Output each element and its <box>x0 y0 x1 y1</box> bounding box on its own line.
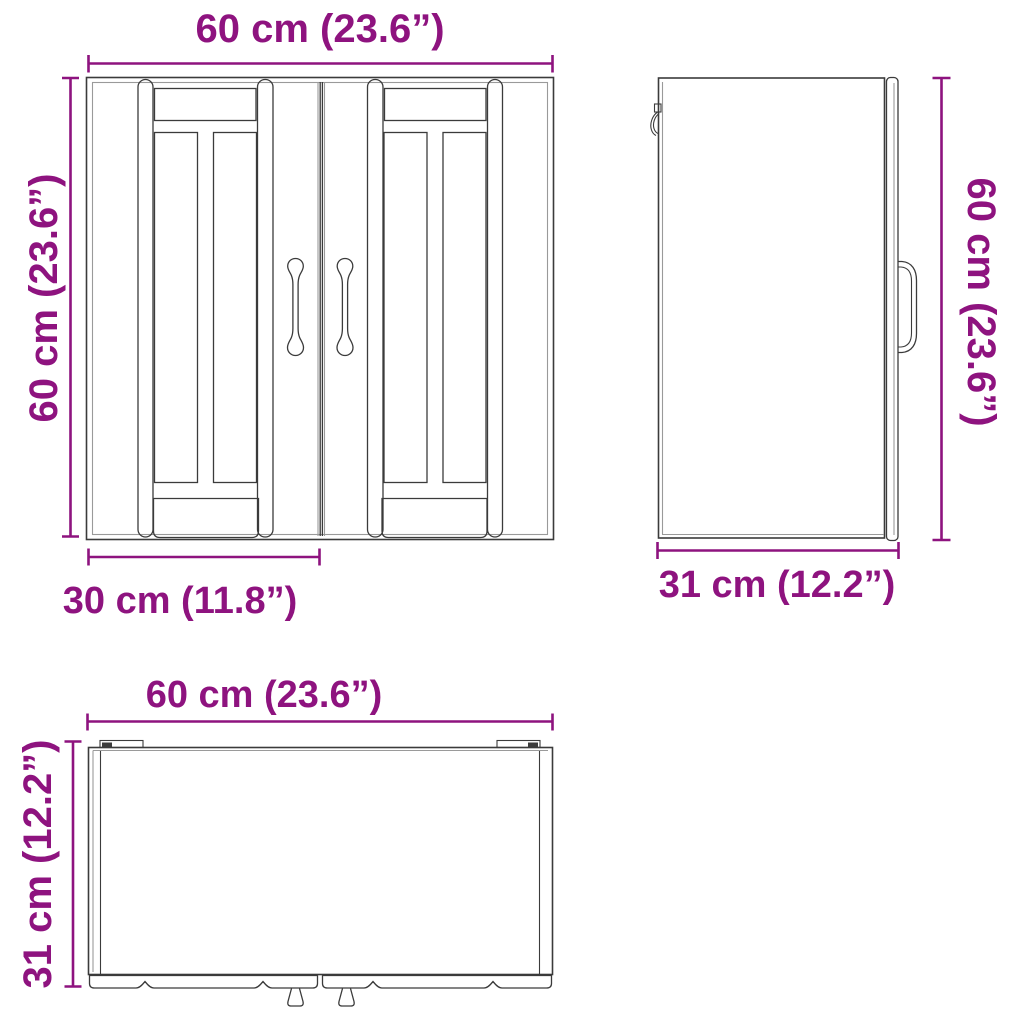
top-depth-dimension-line <box>65 742 82 987</box>
door-bottom-panel <box>154 499 259 538</box>
side-height-dimension-line <box>933 78 951 540</box>
door-handle-stile <box>258 80 274 538</box>
side-view-drawing <box>651 78 951 560</box>
door-handle <box>288 259 304 356</box>
door-hinge-stile <box>138 80 153 538</box>
top-right-door-front <box>323 976 552 989</box>
door-left-pane <box>155 133 198 483</box>
top-width-dimension-line <box>87 714 553 731</box>
diagram-canvas <box>0 0 1024 1024</box>
top-left-door-front <box>90 976 318 989</box>
front-door-width-dimension-line <box>88 549 320 566</box>
side-height-label: 60 cm (23.6”) <box>960 152 1002 452</box>
top-view-drawing <box>65 714 554 1007</box>
cabinet-dimension-diagram: 60 cm (23.6”) 60 cm (23.6”) 30 cm (11.8”… <box>0 0 1024 1024</box>
top-depth-label: 31 cm (12.2”) <box>17 714 59 1014</box>
top-carcass-outline <box>89 748 553 975</box>
front-width-dimension-line <box>88 55 553 73</box>
side-carcass-outline <box>659 78 885 538</box>
front-door-width-label: 30 cm (11.8”) <box>30 580 330 622</box>
door-right-pane <box>214 133 257 483</box>
front-height-label: 60 cm (23.6”) <box>23 148 65 448</box>
top-left-door-handle <box>288 989 303 1007</box>
front-left-door <box>138 80 304 538</box>
side-depth-dimension-line <box>657 542 899 559</box>
front-view-drawing <box>62 55 554 566</box>
top-hinge-plate-right <box>497 741 540 748</box>
front-width-label: 60 cm (23.6”) <box>170 8 470 50</box>
front-door-gap <box>318 82 325 536</box>
side-door-edge <box>887 78 899 541</box>
side-door-handle <box>898 262 917 353</box>
side-hinge <box>651 104 661 136</box>
top-width-label: 60 cm (23.6”) <box>114 674 414 716</box>
front-right-door <box>337 80 503 538</box>
door-transom-pane <box>155 89 257 121</box>
top-hinge-plate-left <box>100 741 143 748</box>
side-depth-label: 31 cm (12.2”) <box>627 564 927 606</box>
top-right-door-handle <box>339 989 354 1007</box>
